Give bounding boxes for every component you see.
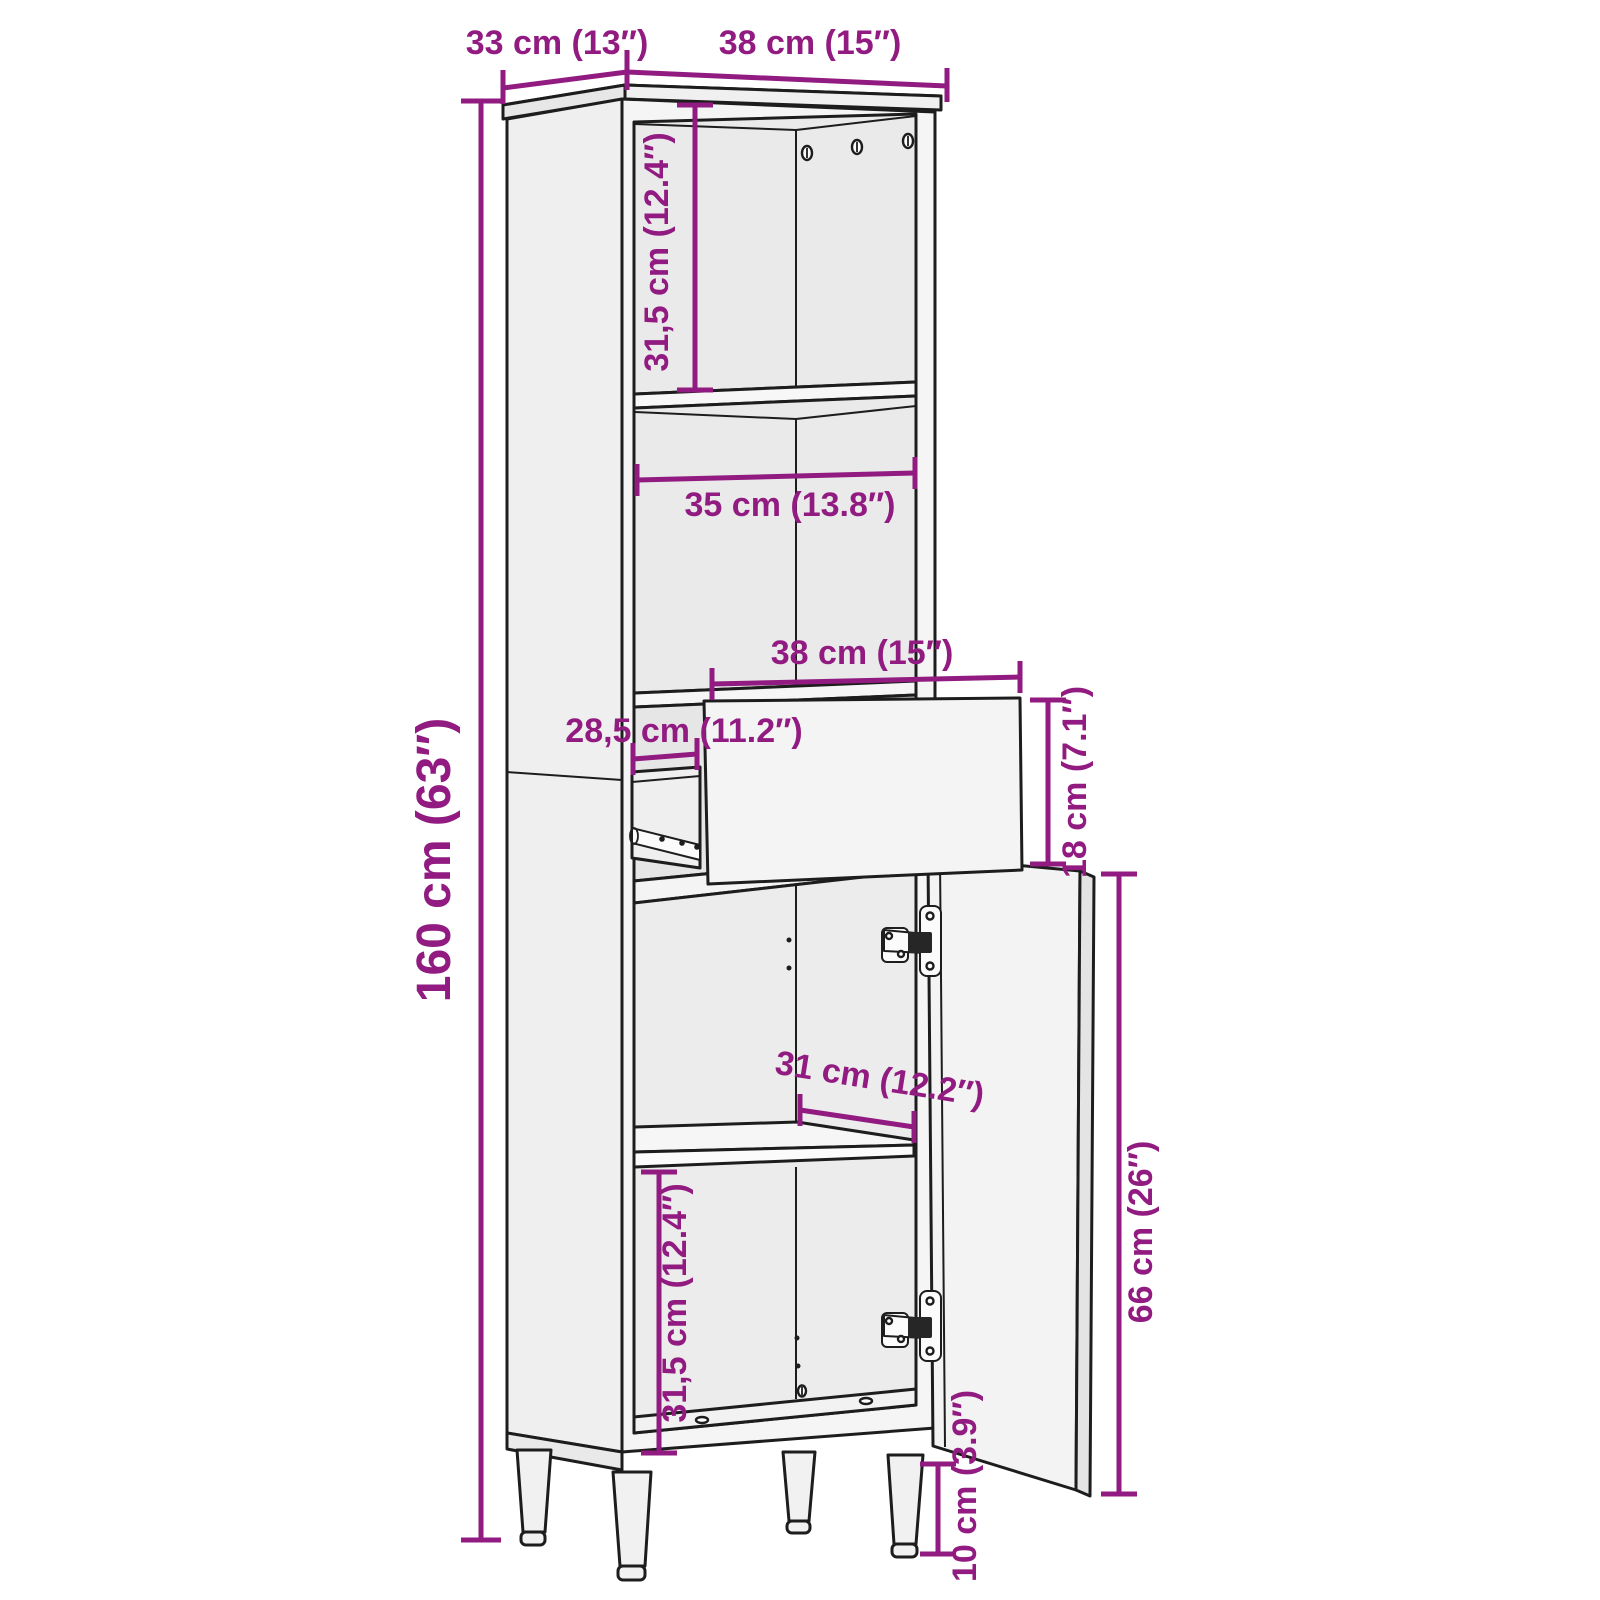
cabinet — [503, 85, 1094, 1580]
diagram-canvas: 33 cm (13″) 38 cm (15″) 31,5 cm (12.4″) … — [0, 0, 1600, 1600]
dim-drawer-height: 18 cm (7.1″) — [1030, 686, 1094, 878]
upper-compartment — [634, 114, 916, 394]
legs — [517, 1450, 923, 1580]
door-outer-edge — [1076, 871, 1094, 1496]
dim-label-total-height: 160 cm (63″) — [408, 718, 461, 1002]
leg-foot — [521, 1532, 545, 1545]
dim-label-door-height: 66 cm (26″) — [1122, 1141, 1160, 1324]
leg-back-right — [783, 1452, 815, 1533]
dim-door-height: 66 cm (26″) — [1101, 874, 1160, 1494]
leg-foot — [787, 1521, 810, 1533]
cabinet-dimension-diagram: 33 cm (13″) 38 cm (15″) 31,5 cm (12.4″) … — [0, 0, 1600, 1600]
dim-label-drawer-depth: 28,5 cm (11.2″) — [565, 712, 802, 750]
dim-label-upper-compartment-height: 31,5 cm (12.4″) — [638, 132, 676, 371]
leg-front-left — [613, 1472, 651, 1580]
dim-label-drawer-height: 18 cm (7.1″) — [1056, 686, 1094, 878]
dim-total-height: 160 cm (63″) — [408, 101, 501, 1540]
leg-back-left — [517, 1450, 551, 1545]
dim-label-leg-height: 10 cm (3.9″) — [946, 1390, 984, 1582]
hinge-cup — [908, 1317, 932, 1338]
dim-label-top-depth: 33 cm (13″) — [466, 24, 649, 62]
leg-foot — [892, 1544, 917, 1557]
leg-front-right — [888, 1455, 923, 1557]
dim-label-top-width: 38 cm (15″) — [719, 24, 902, 62]
dim-label-lower-compartment-height: 31,5 cm (12.4″) — [656, 1183, 694, 1422]
upper-compartment-interior — [634, 114, 916, 394]
hinge-cup — [908, 932, 932, 953]
leg-foot — [618, 1566, 645, 1580]
dim-label-drawer-width: 38 cm (15″) — [771, 634, 954, 672]
dim-label-inner-width: 35 cm (13.8″) — [685, 486, 896, 524]
